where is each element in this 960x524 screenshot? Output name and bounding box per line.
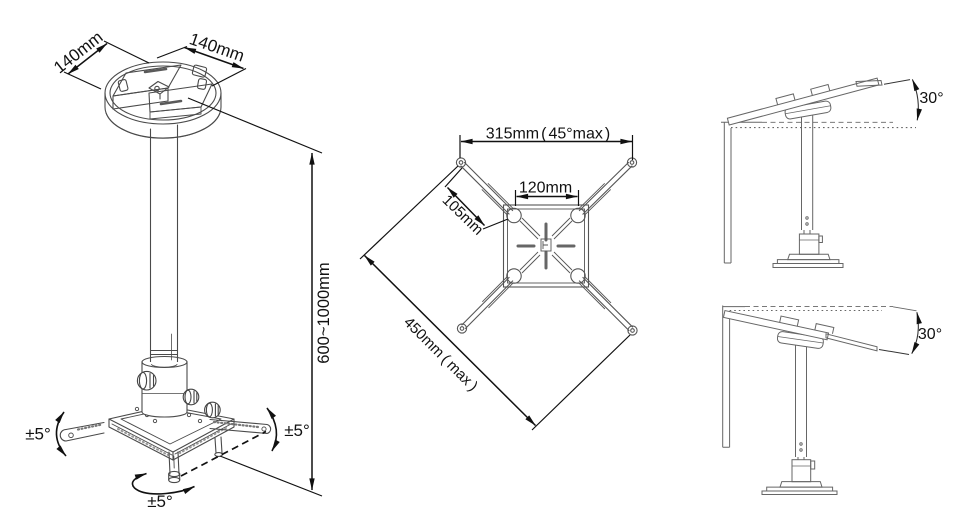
svg-text:140mm: 140mm: [187, 29, 247, 65]
svg-text:600~1000mm: 600~1000mm: [315, 262, 333, 363]
svg-text:315mm(45°max): 315mm(45°max): [486, 126, 610, 143]
svg-text:450mm(max): 450mm(max): [400, 314, 481, 395]
svg-text:±5°: ±5°: [25, 425, 51, 444]
svg-text:30°: 30°: [918, 326, 942, 343]
svg-text:30°: 30°: [919, 90, 943, 107]
svg-text:120mm: 120mm: [519, 180, 572, 197]
svg-text:±5°: ±5°: [284, 421, 310, 440]
svg-text:140mm: 140mm: [50, 27, 106, 77]
svg-text:105mm: 105mm: [439, 192, 487, 239]
svg-text:±5°: ±5°: [147, 492, 173, 511]
